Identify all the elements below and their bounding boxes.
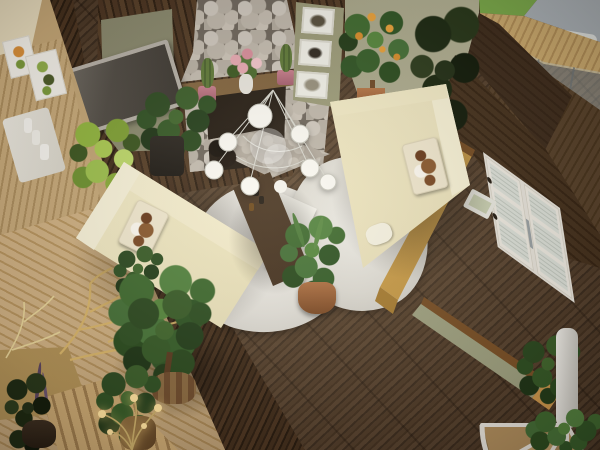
yucca-pot[interactable]: [298, 282, 336, 314]
chandelier[interactable]: [198, 86, 358, 216]
twig-floor-lamp[interactable]: [92, 392, 164, 450]
game-viewport: [0, 0, 600, 450]
orange-tree[interactable]: [332, 0, 422, 95]
bottom-right-plant[interactable]: [518, 408, 600, 450]
corner-fern-pot: [22, 420, 56, 448]
